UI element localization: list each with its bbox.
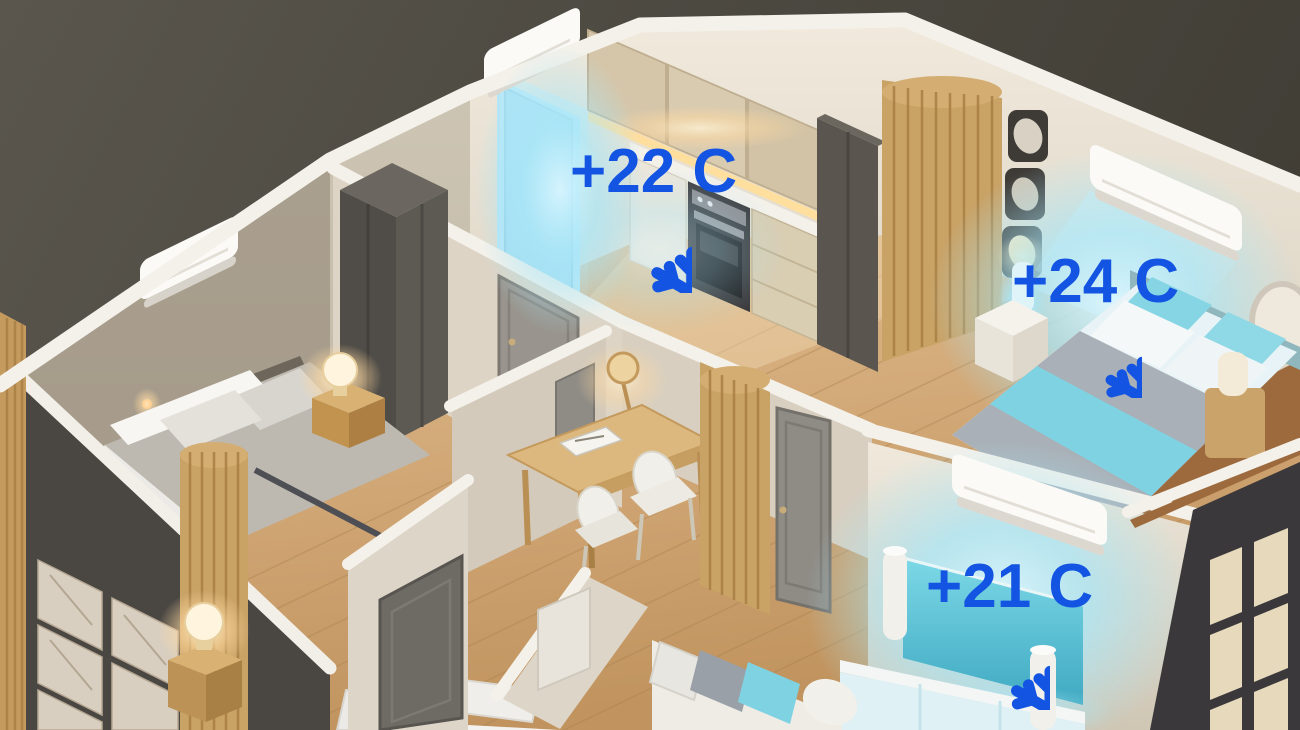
snowflake-icon — [596, 197, 692, 293]
apartment-climate-scene: +22 C +24 C +21 C — [0, 0, 1300, 730]
temperature-label-living-room: +21 C — [926, 556, 1093, 618]
snowflake-icon — [1056, 312, 1142, 398]
hall-closet — [817, 114, 886, 372]
speaker-left — [883, 546, 907, 640]
nightstand-bottom-left — [158, 590, 250, 722]
temperature-label-kitchen: +22 C — [570, 141, 737, 203]
curtain-column-living — [700, 362, 770, 615]
temperature-label-bedroom: +24 C — [1012, 251, 1179, 313]
snowflake-icon — [958, 618, 1050, 710]
